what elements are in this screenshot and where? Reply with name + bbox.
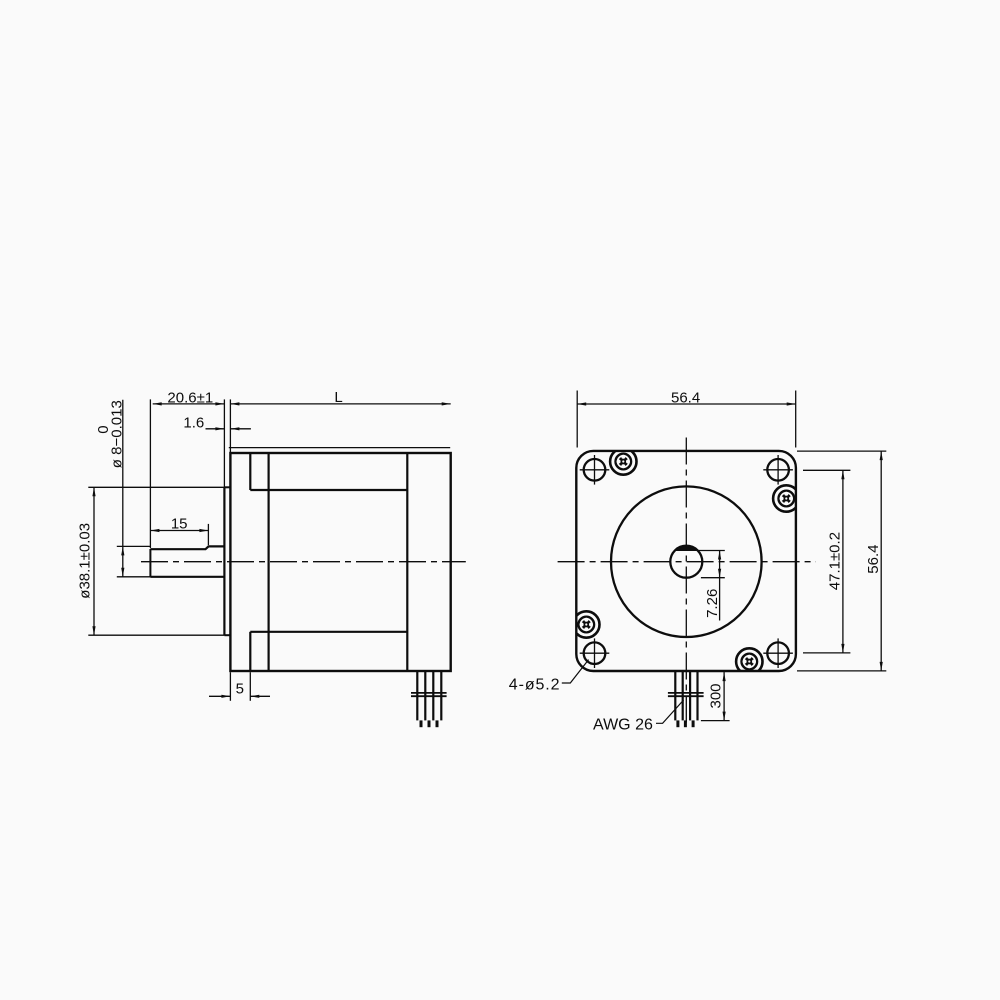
svg-text:AWG 26: AWG 26 xyxy=(593,716,653,733)
svg-text:47.1±0.2: 47.1±0.2 xyxy=(827,532,844,590)
svg-text:56.4: 56.4 xyxy=(671,389,700,406)
svg-text:20.6±1: 20.6±1 xyxy=(167,389,213,406)
svg-text:300: 300 xyxy=(708,683,725,708)
svg-text:1.6: 1.6 xyxy=(183,414,204,431)
svg-text:L: L xyxy=(334,389,342,406)
svg-text:ø38.1±0.03: ø38.1±0.03 xyxy=(76,523,93,599)
svg-text:4-ø5.2: 4-ø5.2 xyxy=(509,677,561,694)
svg-text:5: 5 xyxy=(236,681,244,698)
svg-text:ø 8−0.013: ø 8−0.013 xyxy=(108,400,125,468)
svg-text:15: 15 xyxy=(171,516,188,533)
svg-text:7.26: 7.26 xyxy=(704,589,721,618)
svg-text:56.4: 56.4 xyxy=(865,544,882,573)
